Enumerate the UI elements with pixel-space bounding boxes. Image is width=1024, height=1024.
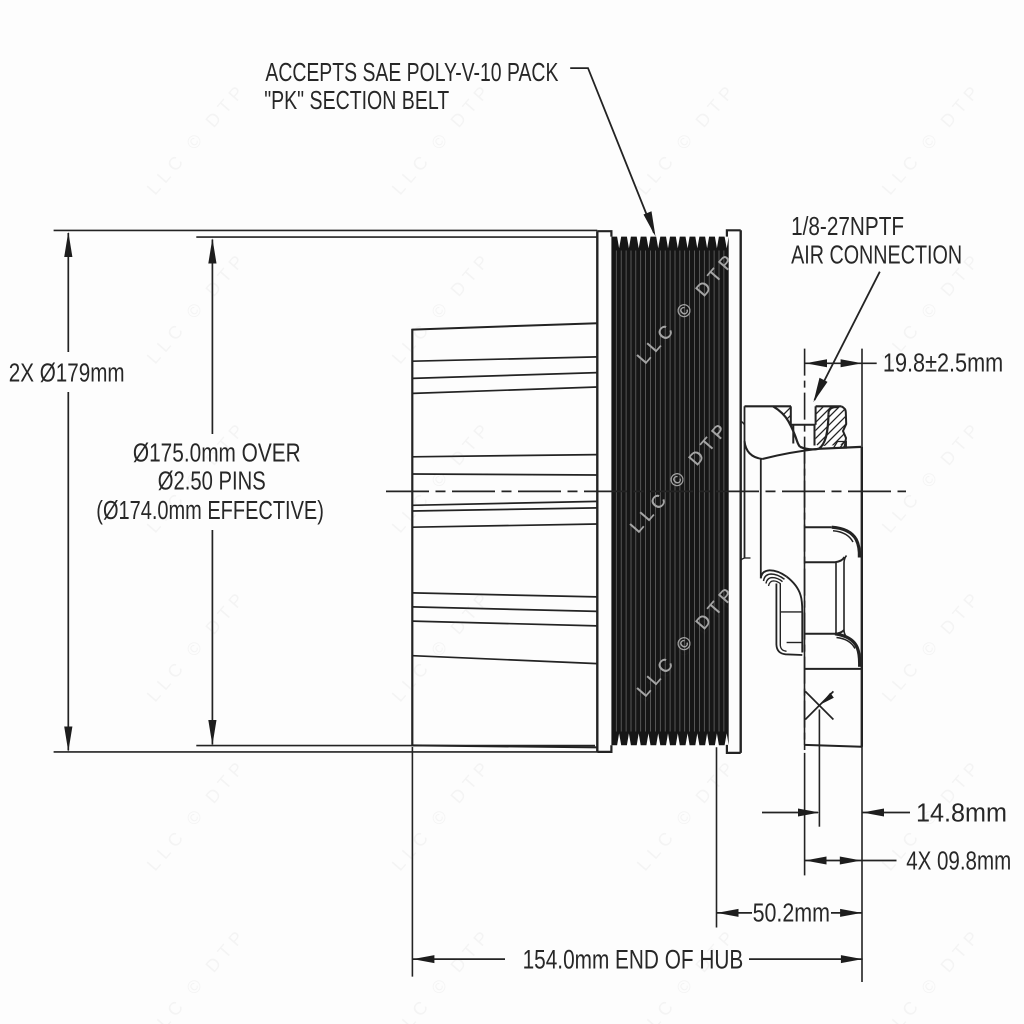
svg-text:1/8-27NPTF: 1/8-27NPTF — [791, 213, 904, 241]
svg-text:"PK" SECTION BELT: "PK" SECTION BELT — [264, 87, 449, 115]
svg-text:ACCEPTS SAE POLY-V-10 PACK: ACCEPTS SAE POLY-V-10 PACK — [265, 59, 558, 87]
svg-text:4X 09.8mm: 4X 09.8mm — [906, 848, 1011, 876]
svg-text:50.2mm: 50.2mm — [753, 900, 830, 928]
svg-text:(Ø174.0mm EFFECTIVE): (Ø174.0mm EFFECTIVE) — [96, 497, 324, 525]
svg-text:2X Ø179mm: 2X Ø179mm — [9, 360, 125, 388]
svg-text:AIR CONNECTION: AIR CONNECTION — [791, 242, 962, 270]
